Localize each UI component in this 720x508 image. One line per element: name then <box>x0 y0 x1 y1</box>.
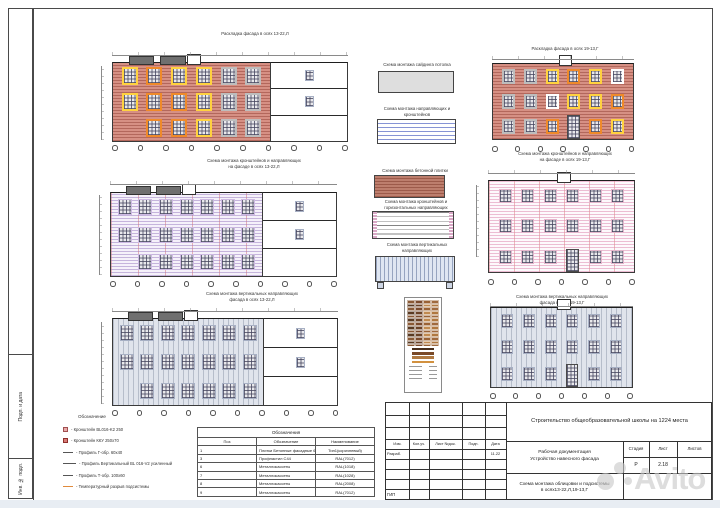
micro-text <box>429 374 437 375</box>
axis-marker <box>342 145 348 151</box>
facade-window <box>196 67 212 85</box>
facade-window <box>221 93 237 111</box>
facade-window <box>202 325 216 341</box>
title-block-line <box>386 427 506 428</box>
facade-layout-19-13 <box>492 63 634 140</box>
rooftop-unit <box>156 186 181 195</box>
facade-body <box>492 63 634 140</box>
code-row <box>409 378 437 379</box>
axis-marker <box>536 393 542 399</box>
axis-row <box>488 279 635 285</box>
axis-marker <box>184 281 190 287</box>
window-row <box>489 242 634 272</box>
facade-window <box>146 119 162 137</box>
axis-marker <box>606 279 612 285</box>
facade-window <box>122 67 138 85</box>
axis-marker <box>135 281 141 287</box>
col-naimenovanie: Наименование <box>316 438 375 446</box>
facade-window <box>610 367 622 381</box>
axis-marker <box>513 393 519 399</box>
building-section-cut <box>262 192 337 277</box>
axis-marker <box>307 281 313 287</box>
sheet-value: 2.18 <box>649 457 677 473</box>
window-row <box>113 115 270 141</box>
facade-window <box>546 94 559 109</box>
facade-window <box>241 199 255 215</box>
window-row <box>493 114 633 139</box>
facade-window <box>122 93 138 111</box>
color-bar <box>412 348 433 351</box>
panel-label-2: Схема монтажа направляющих и кронштейнов <box>372 106 462 118</box>
axis-marker <box>559 279 565 285</box>
axis-marker <box>110 281 116 287</box>
concrete-tile-scheme <box>374 175 445 198</box>
facade-window <box>118 227 132 243</box>
stage-label: Стадия <box>623 441 649 457</box>
legend-item-label: Профиль Г-обр. 60х40 <box>76 450 122 455</box>
table-cell: 7 <box>198 471 257 479</box>
window-row <box>491 361 632 387</box>
axis-marker <box>606 146 612 152</box>
facade-window <box>171 67 187 85</box>
section-floor <box>271 89 347 115</box>
window-row <box>111 248 262 276</box>
axis-row <box>112 410 338 416</box>
tb-header-col: Лист №док. <box>429 439 462 449</box>
rooftop-unit <box>160 56 186 65</box>
cladding-swatch-panel <box>404 297 442 393</box>
axis-marker <box>240 145 246 151</box>
facade-window <box>161 325 175 341</box>
facade-window <box>140 354 154 370</box>
dimension-line <box>488 170 635 174</box>
tb-header-row: Изм.Кол.уч.Лист №док.Подп.Дата <box>386 439 506 449</box>
facade-body <box>488 180 635 273</box>
axis-marker <box>490 393 496 399</box>
facade-window <box>138 227 152 243</box>
facade-window <box>181 354 195 370</box>
table-cell: Металлокассеты <box>257 479 316 487</box>
tb-header-col: Изм. <box>386 439 409 449</box>
facade-body <box>112 318 264 406</box>
sheet-left-column: Подп. и дата Инв. № подл. <box>8 8 33 499</box>
facade-window <box>245 119 261 137</box>
facade-window <box>243 354 257 370</box>
facade-window <box>181 383 195 399</box>
micro-text <box>429 370 437 371</box>
title-d3: Схема монтажа кронштейнов и направляющих… <box>148 158 360 170</box>
panel-label-4: Схема монтажа кронштейнов и горизонтальн… <box>370 199 462 211</box>
line-long-symbol <box>63 463 76 464</box>
title-block-line <box>506 473 712 474</box>
section-floor <box>263 249 336 276</box>
facade-window <box>567 69 580 84</box>
drawing-sheet-photo: { "titleblock": { "project": "Строительс… <box>0 0 720 508</box>
facade-window <box>221 227 235 243</box>
axis-marker <box>284 410 290 416</box>
facade-window <box>611 119 624 134</box>
facade-window <box>589 69 602 84</box>
facade-window <box>611 94 624 109</box>
facade-window <box>140 325 154 341</box>
axis-marker <box>282 281 288 287</box>
window-row <box>113 63 270 89</box>
facade-window <box>181 325 195 341</box>
facade-window <box>588 340 600 354</box>
facade-window <box>546 119 559 134</box>
project-name: Строительство общеобразовательной школы … <box>508 405 711 439</box>
facade-window <box>138 199 152 215</box>
inv-podl-label: Инв. № подл. <box>18 463 24 495</box>
facade-window <box>524 119 537 134</box>
table-row: 7МеталлокассетыRAL(1028) <box>198 471 375 479</box>
title-block-line <box>386 439 506 440</box>
inv-podl-cell: Инв. № подл. <box>9 458 32 498</box>
section-window <box>296 357 305 368</box>
facade-window <box>180 227 194 243</box>
legend-header: Обозначение <box>78 414 106 419</box>
axis-marker <box>235 410 241 416</box>
sheet-title: Схема монтажа облицовки и подсистемы в о… <box>508 474 621 500</box>
title-block-line <box>462 403 463 501</box>
window-row <box>489 181 634 211</box>
legend-items: Кронштейн BL016-K2 250Кронштейн ККУ 250х… <box>63 427 203 489</box>
table-cell: 1 <box>198 446 257 454</box>
facade-window <box>544 250 557 264</box>
facade-window <box>544 189 557 203</box>
horizontal-rails-scheme <box>372 211 454 239</box>
title-block-line <box>409 403 410 501</box>
rooftop-unit <box>129 56 155 65</box>
table-cell: 8 <box>198 479 257 487</box>
facade-window <box>196 93 212 111</box>
entrance-door <box>567 115 580 139</box>
color-bar <box>412 361 433 364</box>
axis-marker <box>627 393 633 399</box>
facade-window <box>161 383 175 399</box>
facade-window <box>171 119 187 137</box>
facade-window <box>611 250 624 264</box>
facade-window <box>221 199 235 215</box>
window-row <box>491 334 632 360</box>
axis-marker <box>161 410 167 416</box>
facade-window <box>523 314 535 328</box>
color-bar <box>412 356 433 359</box>
axis-marker <box>488 279 494 285</box>
axis-marker <box>512 279 518 285</box>
table-row: 9МеталлокассетыRAL(7012) <box>198 488 375 496</box>
title-block-line <box>623 441 624 501</box>
sq-red-symbol <box>63 438 68 443</box>
facade-window <box>146 67 162 85</box>
section-window <box>295 201 304 212</box>
legend-item: Профиль Т-обр. 100х60 <box>63 473 203 478</box>
facade-window <box>544 219 557 233</box>
axis-row <box>492 146 634 152</box>
title-d5: Схема монтажа вертикальных направляющих … <box>144 291 360 303</box>
facade-window <box>589 250 602 264</box>
window-row <box>113 348 263 377</box>
facade-window <box>159 254 173 270</box>
section-floor <box>271 116 347 141</box>
axis-marker <box>317 145 323 151</box>
facade-window <box>243 383 257 399</box>
brick-color-mosaic <box>407 300 439 346</box>
facade-window <box>589 94 602 109</box>
verticals-scheme-13-22 <box>112 318 338 406</box>
axis-marker <box>333 410 339 416</box>
spec-table: Обозначения Поз Обозначение Наименование… <box>197 427 375 497</box>
facade-window <box>521 219 534 233</box>
axis-marker <box>560 146 566 152</box>
section-floor <box>263 193 336 221</box>
mosaic-tile <box>423 344 431 346</box>
table-cell: Плитки Бетонные фасадные 600х190 <box>257 446 316 454</box>
sq-pink-symbol <box>63 427 68 432</box>
facade-window <box>524 94 537 109</box>
facade-window <box>589 189 602 203</box>
facade-window <box>589 219 602 233</box>
panel-label-3: Схема монтажа бетонной плитки <box>370 168 460 174</box>
mosaic-tile <box>415 344 423 346</box>
window-row <box>493 89 633 114</box>
facade-window <box>245 93 261 111</box>
mosaic-tile <box>407 344 415 346</box>
micro-text <box>409 378 422 379</box>
table-cell: Тип1(коричневый) <box>316 446 375 454</box>
facade-window <box>610 314 622 328</box>
facade-window <box>588 367 600 381</box>
legend-item-label: Температурный разрыв подсистемы <box>76 484 149 489</box>
tb-header-col: Кол.уч. <box>409 439 429 449</box>
col-oboznachenie: Обозначение <box>257 438 316 446</box>
rooftop-unit <box>128 312 153 321</box>
vertical-rails-scheme <box>375 256 455 282</box>
table-cell: RAL(1028) <box>316 471 375 479</box>
micro-text <box>409 370 422 371</box>
axis-marker <box>583 146 589 152</box>
micro-text <box>429 366 437 367</box>
window-row <box>111 193 262 221</box>
axis-marker <box>605 393 611 399</box>
micro-text <box>429 378 437 379</box>
table-row: 6МеталлокассетыRAL(1018) <box>198 463 375 471</box>
facade-window <box>501 367 513 381</box>
rooftop-unit <box>158 312 183 321</box>
facade-window <box>222 383 236 399</box>
axis-marker <box>258 281 264 287</box>
table-cell: RAL(7012) <box>316 454 375 462</box>
title-block: Строительство общеобразовательной школы … <box>385 402 712 500</box>
facade-window <box>221 254 235 270</box>
title-block-line <box>386 459 506 460</box>
legend-item-label: Профиль Т-обр. 100х60 <box>76 473 125 478</box>
table-cell: 3 <box>198 454 257 462</box>
sheets-label: Листов <box>677 441 712 457</box>
building-section-cut <box>263 318 338 406</box>
axis-marker <box>308 410 314 416</box>
facade-window <box>245 67 261 85</box>
title-block-line <box>386 415 506 416</box>
axis-marker <box>163 145 169 151</box>
facade-window <box>159 227 173 243</box>
facade-window <box>138 254 152 270</box>
legend-item: Температурный разрыв подсистемы <box>63 484 203 489</box>
table-cell: RAL(2008) <box>316 479 375 487</box>
facade-window <box>611 69 624 84</box>
title-block-line <box>386 479 506 480</box>
micro-text <box>409 374 422 375</box>
line-symbol <box>63 475 73 476</box>
facade-window <box>566 314 578 328</box>
facade-window <box>521 189 534 203</box>
table-cell: Профнастил С44 <box>257 454 316 462</box>
section-floor <box>264 348 337 377</box>
axis-marker <box>629 146 635 152</box>
facade-body <box>112 62 271 142</box>
facade-window <box>588 314 600 328</box>
vertical-dimension <box>101 322 104 404</box>
axis-marker <box>538 146 544 152</box>
table-cell: RAL(7012) <box>316 488 375 496</box>
mosaic-tile <box>431 344 439 346</box>
axis-marker <box>210 410 216 416</box>
entrance-door <box>566 249 579 272</box>
facade-window <box>611 219 624 233</box>
support-leg <box>446 282 453 289</box>
facade-window <box>499 189 512 203</box>
facade-window <box>241 227 255 243</box>
legend-item-label: Кронштейн BL016-K2 250 <box>71 427 123 432</box>
table-row: 1Плитки Бетонные фасадные 600х190Тип1(ко… <box>198 446 375 454</box>
tb-header-col: Подп. <box>462 439 485 449</box>
stage-value: Р <box>623 457 649 473</box>
table-cell: Металлокассеты <box>257 471 316 479</box>
title-block-line <box>623 457 712 458</box>
dimension-line <box>110 181 337 185</box>
table-cell: 6 <box>198 463 257 471</box>
section-window <box>296 328 305 339</box>
line-orange-symbol <box>63 486 73 487</box>
vertical-dimension <box>476 185 479 257</box>
dimension-line <box>490 303 633 307</box>
building-section-cut <box>270 62 348 142</box>
window-row <box>111 221 262 249</box>
col-poz: Поз <box>198 438 257 446</box>
axis-marker <box>137 410 143 416</box>
table-cell: RAL(1018) <box>316 463 375 471</box>
facade-window <box>567 94 580 109</box>
axis-marker <box>515 146 521 152</box>
podp-data-cell: Подп. и дата <box>9 354 32 458</box>
axis-marker <box>138 145 144 151</box>
axis-marker <box>582 393 588 399</box>
support-leg <box>377 282 384 289</box>
legend-item: Кронштейн BL016-K2 250 <box>63 427 203 432</box>
facade-window <box>546 69 559 84</box>
title-block-line <box>506 441 712 442</box>
facade-window <box>501 340 513 354</box>
legend-item-label: Кронштейн ККУ 250х70 <box>71 438 119 443</box>
facade-window <box>499 250 512 264</box>
facade-window <box>200 254 214 270</box>
facade-window <box>545 340 557 354</box>
axis-marker <box>233 281 239 287</box>
facade-window <box>222 325 236 341</box>
color-bar <box>412 352 433 355</box>
title-block-line <box>485 403 486 501</box>
legend-item: Профиль Вертикальный BL 016-V2 усиленный <box>63 461 203 466</box>
facade-window <box>221 119 237 137</box>
facade-window <box>566 219 579 233</box>
axis-marker <box>112 145 118 151</box>
title-d2: Раскладка фасада в осях 19-13,Г <box>494 46 636 52</box>
axis-marker <box>629 279 635 285</box>
gip-label: ГИП <box>387 489 427 500</box>
title-block-line <box>386 469 506 470</box>
facade-window <box>611 189 624 203</box>
window-row <box>113 319 263 348</box>
facade-window <box>566 340 578 354</box>
facade-window <box>521 250 534 264</box>
title-block-line <box>386 489 506 490</box>
facade-window <box>118 199 132 215</box>
doc-type: Рабочая документация Устройство навесног… <box>508 443 621 471</box>
facade-window <box>610 340 622 354</box>
vertical-dimension <box>101 66 104 140</box>
window-row <box>491 308 632 334</box>
facade-window <box>171 93 187 111</box>
facade-window <box>200 199 214 215</box>
facade-window <box>501 314 513 328</box>
facade-window <box>140 383 154 399</box>
tb-header-col: Дата <box>485 439 506 449</box>
facade-window <box>502 119 515 134</box>
section-floor <box>264 319 337 348</box>
dimension-line <box>112 308 338 312</box>
spec-table-body: 1Плитки Бетонные фасадные 600х190Тип1(ко… <box>198 446 375 496</box>
line-symbol <box>63 452 73 453</box>
title-d4: Схема монтажа кронштейнов и направляющих… <box>494 151 636 163</box>
axis-marker <box>291 145 297 151</box>
facade-window <box>161 354 175 370</box>
section-window <box>305 70 314 81</box>
facade-window <box>202 383 216 399</box>
verticals-scheme-19-13 <box>490 307 633 388</box>
date-value: 11.22 <box>485 449 506 459</box>
photo-bottom-edge <box>0 500 720 508</box>
facade-window <box>120 325 134 341</box>
dimension-line <box>492 56 634 60</box>
rails-brackets-scheme <box>377 119 456 144</box>
table-cell: 9 <box>198 488 257 496</box>
section-floor <box>264 377 337 405</box>
spec-table-title: Обозначения <box>198 428 375 438</box>
axis-marker <box>259 410 265 416</box>
axis-marker <box>186 410 192 416</box>
code-row <box>409 366 437 367</box>
facade-window <box>523 367 535 381</box>
section-floor <box>271 63 347 89</box>
axis-marker <box>535 279 541 285</box>
facade-window <box>566 189 579 203</box>
window-row <box>113 89 270 115</box>
window-row <box>493 64 633 89</box>
axis-marker <box>266 145 272 151</box>
podp-data-label: Подп. и дата <box>18 392 24 421</box>
facade-window <box>196 119 212 137</box>
facade-body <box>110 192 263 277</box>
